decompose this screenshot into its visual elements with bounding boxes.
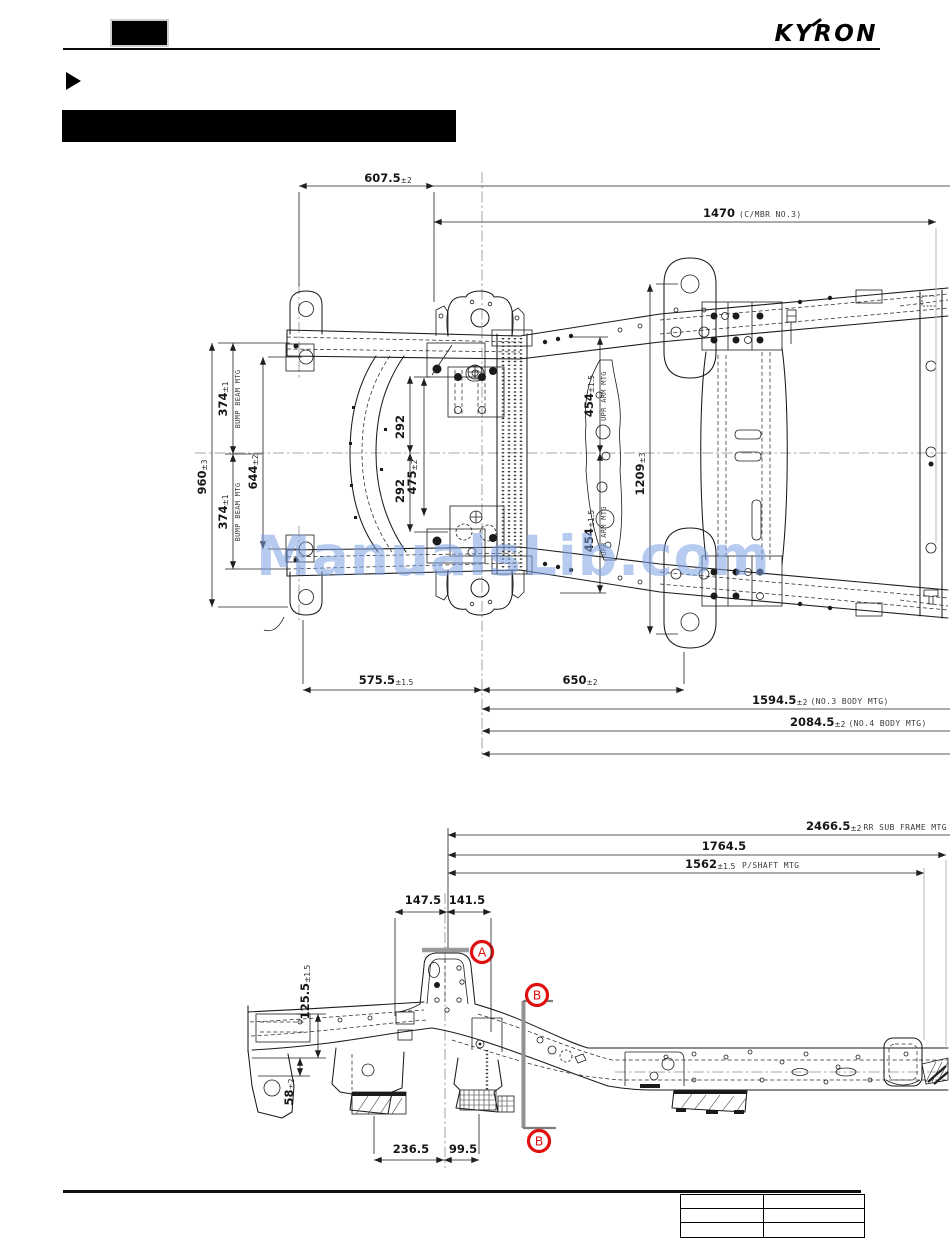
dimension-labels-top-view: 607.5±2 1470(C/MBR NO.3) 374±1 BUMP BEAM… — [195, 171, 927, 729]
dimension-lines-top-view — [212, 186, 950, 754]
dim-99: 99.5 — [449, 1142, 477, 1156]
dim-2084: 2084.5±2(NO.4 BODY MTG) — [790, 715, 927, 729]
dim-1470: 1470(C/MBR NO.3) — [703, 206, 802, 220]
dim-374-top-note: BUMP BEAM MTG — [234, 370, 242, 429]
dim-960: 960±3 — [195, 459, 209, 494]
dim-454-top: 454±1.5 — [582, 375, 596, 417]
chassis-side-view — [248, 950, 948, 1118]
dim-607: 607.5±2 — [364, 171, 412, 185]
dim-650: 650±2 — [562, 673, 597, 687]
dim-374-bottom: 374±1 — [216, 494, 230, 529]
footer-table-cell — [681, 1223, 764, 1237]
watermark: ManualsLib.com — [256, 524, 771, 588]
footer-table-cell — [764, 1209, 864, 1223]
dim-1209: 1209±3 — [633, 452, 647, 495]
technical-drawing-canvas: A B B — [0, 0, 950, 1241]
footer-table — [680, 1194, 865, 1238]
marker-b-top-label: B — [533, 988, 542, 1003]
dim-475: 475±2 — [405, 459, 419, 494]
dim-1594: 1594.5±2(NO.3 BODY MTG) — [752, 693, 889, 707]
dim-454-top-note: UPR ARM MTG — [600, 371, 608, 421]
dim-2466: 2466.5±2RR SUB FRAME MTG — [806, 819, 947, 833]
dim-292-top: 292 — [393, 415, 407, 439]
footer-table-cell — [681, 1195, 764, 1209]
dim-1562-note: P/SHAFT MTG — [742, 861, 799, 870]
footer-table-cell — [764, 1223, 864, 1237]
dim-374-bottom-note: BUMP BEAM MTG — [234, 483, 242, 542]
footer-table-cell — [764, 1195, 864, 1209]
dim-58: 58±2 — [282, 1078, 296, 1105]
dim-125: 125.5±1.5 — [298, 964, 312, 1019]
dim-644: 644±2 — [246, 454, 260, 489]
marker-a-label: A — [478, 945, 487, 960]
view-callouts: A B B — [472, 942, 557, 1152]
dimension-labels-side-view: 2466.5±2RR SUB FRAME MTG 1764.5 1562±1.5… — [282, 819, 947, 1156]
marker-b-bottom-label: B — [535, 1134, 544, 1149]
manual-page: KYRON — [0, 0, 950, 1241]
dim-575: 575.5±1.5 — [359, 673, 414, 687]
dim-141: 141.5 — [449, 893, 485, 907]
dim-236: 236.5 — [393, 1142, 429, 1156]
dim-1562: 1562±1.5 — [685, 857, 735, 871]
dim-1764: 1764.5 — [702, 839, 746, 853]
dim-374-top: 374±1 — [216, 381, 230, 416]
footer-table-cell — [681, 1209, 764, 1223]
dim-147: 147.5 — [405, 893, 441, 907]
